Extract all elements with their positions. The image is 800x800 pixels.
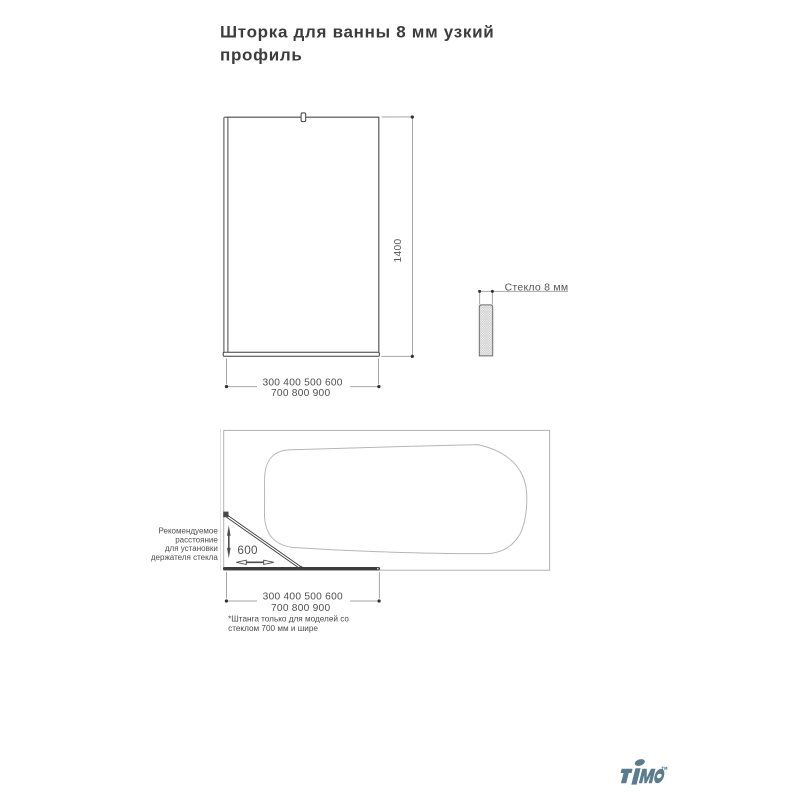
svg-text:700 800 900: 700 800 900 (271, 603, 330, 614)
svg-text:для установки: для установки (165, 544, 218, 553)
svg-text:1400: 1400 (393, 239, 404, 263)
svg-text:*Штанга только для моделей со: *Штанга только для моделей со (228, 615, 349, 624)
svg-text:Стекло 8 мм: Стекло 8 мм (505, 281, 569, 293)
svg-text:600: 600 (237, 544, 258, 557)
svg-text:700 800 900: 700 800 900 (271, 388, 330, 399)
svg-text:профиль: профиль (220, 46, 303, 65)
svg-text:расстояние: расстояние (175, 535, 218, 544)
svg-text:стеклом 700 мм и шире: стеклом 700 мм и шире (228, 624, 318, 633)
svg-text:держателя стекла: держателя стекла (151, 553, 218, 562)
svg-text:300 400 500 600: 300 400 500 600 (262, 378, 342, 389)
svg-text:Шторка для ванны 8 мм узкий: Шторка для ванны 8 мм узкий (220, 23, 494, 42)
svg-text:300 400 500 600: 300 400 500 600 (263, 592, 343, 603)
svg-text:Рекомендуемое: Рекомендуемое (159, 527, 219, 536)
